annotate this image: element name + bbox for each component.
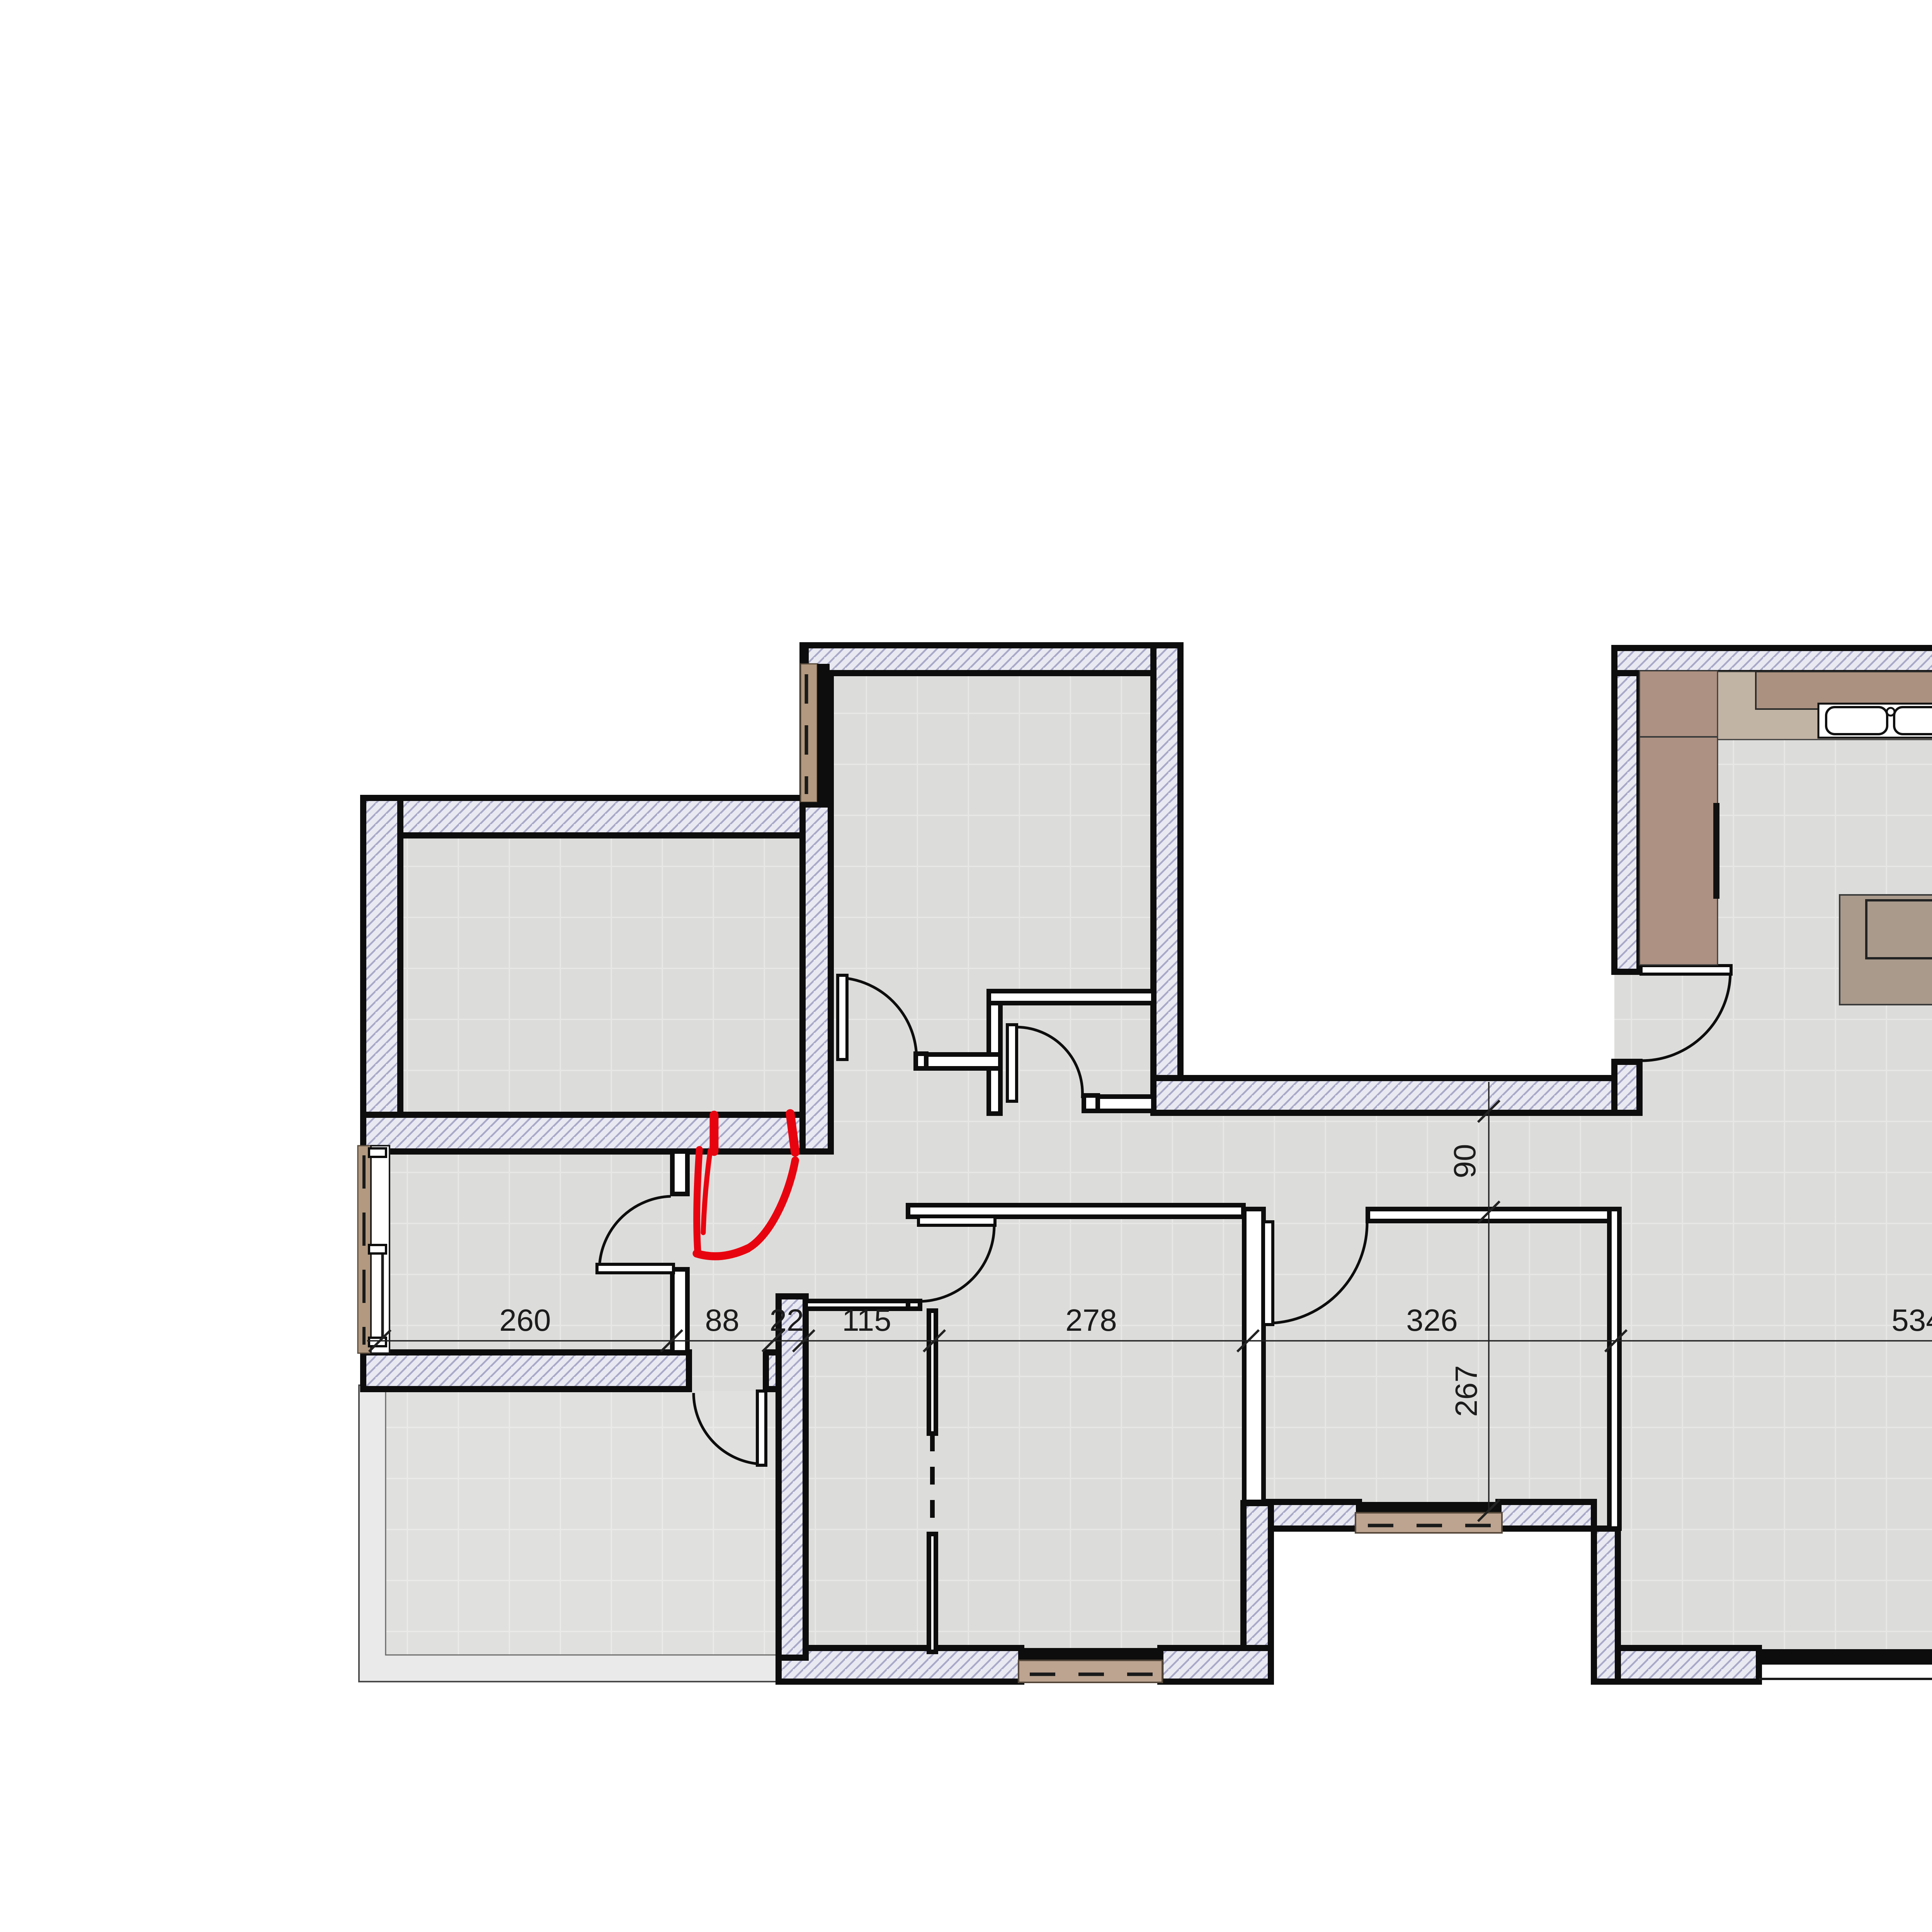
svg-text:22: 22 [770, 1303, 804, 1337]
svg-text:534: 534 [1891, 1303, 1932, 1337]
svg-text:278: 278 [1065, 1303, 1117, 1337]
svg-text:260: 260 [499, 1303, 551, 1337]
svg-text:90: 90 [1447, 1144, 1482, 1179]
svg-text:326: 326 [1406, 1303, 1458, 1337]
svg-text:88: 88 [705, 1303, 740, 1337]
svg-text:267: 267 [1449, 1365, 1483, 1417]
svg-text:115: 115 [842, 1303, 891, 1337]
